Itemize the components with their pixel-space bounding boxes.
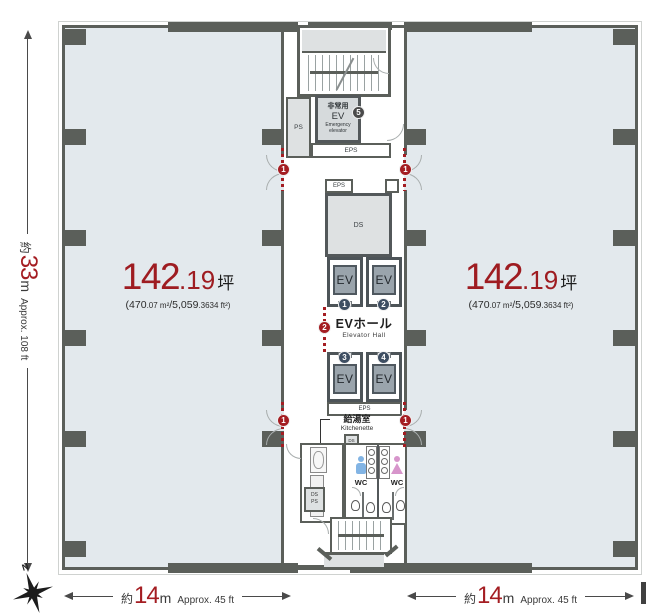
column — [404, 230, 426, 246]
column — [64, 431, 86, 447]
eps-box-mid: EPS — [325, 179, 353, 193]
kitchenette-jp: 給湯室 — [326, 412, 388, 425]
wc-fixture — [366, 446, 377, 479]
elevator-badge-4: 4 — [377, 351, 390, 364]
column — [64, 129, 86, 145]
ev-label: EV — [336, 273, 353, 287]
column — [64, 541, 86, 557]
elevator-hall-label: EVホール Elevator Hall — [325, 313, 403, 339]
dimension-text: 約33mApprox. 108 ft — [14, 234, 42, 369]
wc-male-label: WC — [350, 478, 372, 487]
column — [613, 230, 635, 246]
arrow-right-icon — [282, 592, 291, 600]
area-tsubo-unit: 坪 — [560, 275, 577, 293]
stair-rail — [338, 534, 384, 537]
column — [613, 431, 635, 447]
ev-hall-en: Elevator Hall — [325, 332, 403, 339]
ps-room: PS — [286, 97, 311, 158]
elevator-badge-1: 1 — [338, 298, 351, 311]
elevator-car: EV — [333, 265, 357, 295]
toilet — [351, 500, 360, 511]
area-tsubo-unit: 坪 — [217, 275, 234, 293]
shaft-box — [385, 179, 399, 193]
entrance-badge-1: 1 — [277, 414, 290, 427]
compass: N — [8, 566, 58, 616]
arrow-left-icon — [407, 592, 416, 600]
elevator-badge-2: 2 — [377, 298, 390, 311]
column — [262, 129, 284, 145]
arrow-left-icon — [64, 592, 73, 600]
ds-ps-box-lower: DS PS — [304, 487, 325, 512]
area-tsubo-decimal: .19 — [522, 267, 558, 294]
area-metric: (470.07 m²/5,059.3634 ft²) — [421, 300, 621, 311]
wc-stall-wall — [362, 492, 364, 520]
kitchenette-en: Kitchenette — [326, 425, 388, 432]
door-arc — [352, 487, 361, 496]
wall — [281, 190, 284, 410]
dimension-vertical: 約33mApprox. 108 ft — [16, 30, 40, 572]
toilet — [382, 502, 391, 513]
area-label-right: 142.19坪 (470.07 m²/5,059.3634 ft²) — [421, 258, 621, 311]
dimension-text: 約14mApprox. 45 ft — [113, 582, 242, 610]
wall — [281, 445, 284, 570]
emergency-ev-badge: 5 — [352, 106, 365, 119]
entrance-badge-1: 1 — [399, 163, 412, 176]
stair-landing — [302, 30, 386, 53]
toilet — [366, 502, 375, 513]
ev-label: EV — [375, 372, 392, 386]
kitchenette-leader — [320, 419, 321, 446]
stair-landing — [324, 552, 384, 567]
dimension-bottom-right: 約14mApprox. 45 ft — [407, 584, 634, 608]
emergency-elevator: 非常用 EV Emergency elevator — [315, 95, 361, 143]
dimension-bottom-left: 約14mApprox. 45 ft — [64, 584, 291, 608]
emergency-ev-en2: elevator — [318, 128, 358, 134]
wall — [404, 190, 407, 410]
wc-female-label: WC — [386, 478, 408, 487]
ev-hall-jp: EVホール — [325, 313, 403, 332]
area-tsubo-value: 142 — [122, 258, 179, 297]
elevator-car: EV — [372, 364, 396, 394]
wc-fixture — [379, 446, 390, 479]
column — [64, 29, 86, 45]
column — [613, 330, 635, 346]
ps-label: PS — [294, 124, 303, 131]
floor-plan: 142.19坪 (470.07 m²/5,059.3634 ft²) 142.1… — [0, 0, 646, 616]
elevator-badge-3: 3 — [338, 351, 351, 364]
wall-spandrel — [168, 563, 298, 573]
kitchenette-label: 給湯室 Kitchenette — [326, 412, 388, 432]
toilet — [396, 500, 405, 511]
hall-entrance-badge-2: 2 — [318, 321, 331, 334]
area-metric: (470.07 m²/5,059.3634 ft²) — [78, 300, 278, 311]
entrance-badge-1: 1 — [399, 414, 412, 427]
column — [262, 330, 284, 346]
ev-label: EV — [336, 372, 353, 386]
wall-spandrel — [168, 22, 298, 32]
eps-label: EPS — [344, 147, 357, 154]
column — [404, 330, 426, 346]
eps-label: EPS — [333, 183, 345, 189]
compass-rose-icon — [8, 566, 58, 616]
column — [613, 129, 635, 145]
elevator-car: EV — [372, 265, 396, 295]
ds-room: DS — [325, 193, 392, 257]
area-tsubo-decimal: .19 — [179, 267, 215, 294]
dimension-text: 約14mApprox. 45 ft — [456, 582, 585, 610]
column — [404, 129, 426, 145]
wall-spandrel — [404, 22, 532, 32]
arrow-right-icon — [625, 592, 634, 600]
ds-ps-label: PS — [306, 499, 323, 506]
stair-lower — [330, 517, 392, 554]
area-label-left: 142.19坪 (470.07 m²/5,059.3634 ft²) — [78, 258, 278, 311]
ds-label: DS — [354, 222, 364, 229]
kitchenette-leader — [320, 419, 330, 420]
door-arc — [395, 487, 404, 496]
column — [64, 330, 86, 346]
column — [64, 230, 86, 246]
kitchen-sink — [310, 447, 327, 473]
ev-label: EV — [375, 273, 392, 287]
eps-room-top: EPS — [311, 143, 391, 158]
arrow-up-icon — [24, 30, 32, 39]
elevator-car: EV — [333, 364, 357, 394]
entrance-badge-1: 1 — [277, 163, 290, 176]
page-edge-mark — [641, 582, 646, 604]
column — [613, 29, 635, 45]
column — [262, 230, 284, 246]
wc-room: WC WC — [344, 443, 407, 525]
wc-stall-wall — [392, 492, 394, 520]
column — [613, 541, 635, 557]
area-tsubo-value: 142 — [465, 258, 522, 297]
female-icon — [391, 456, 403, 474]
